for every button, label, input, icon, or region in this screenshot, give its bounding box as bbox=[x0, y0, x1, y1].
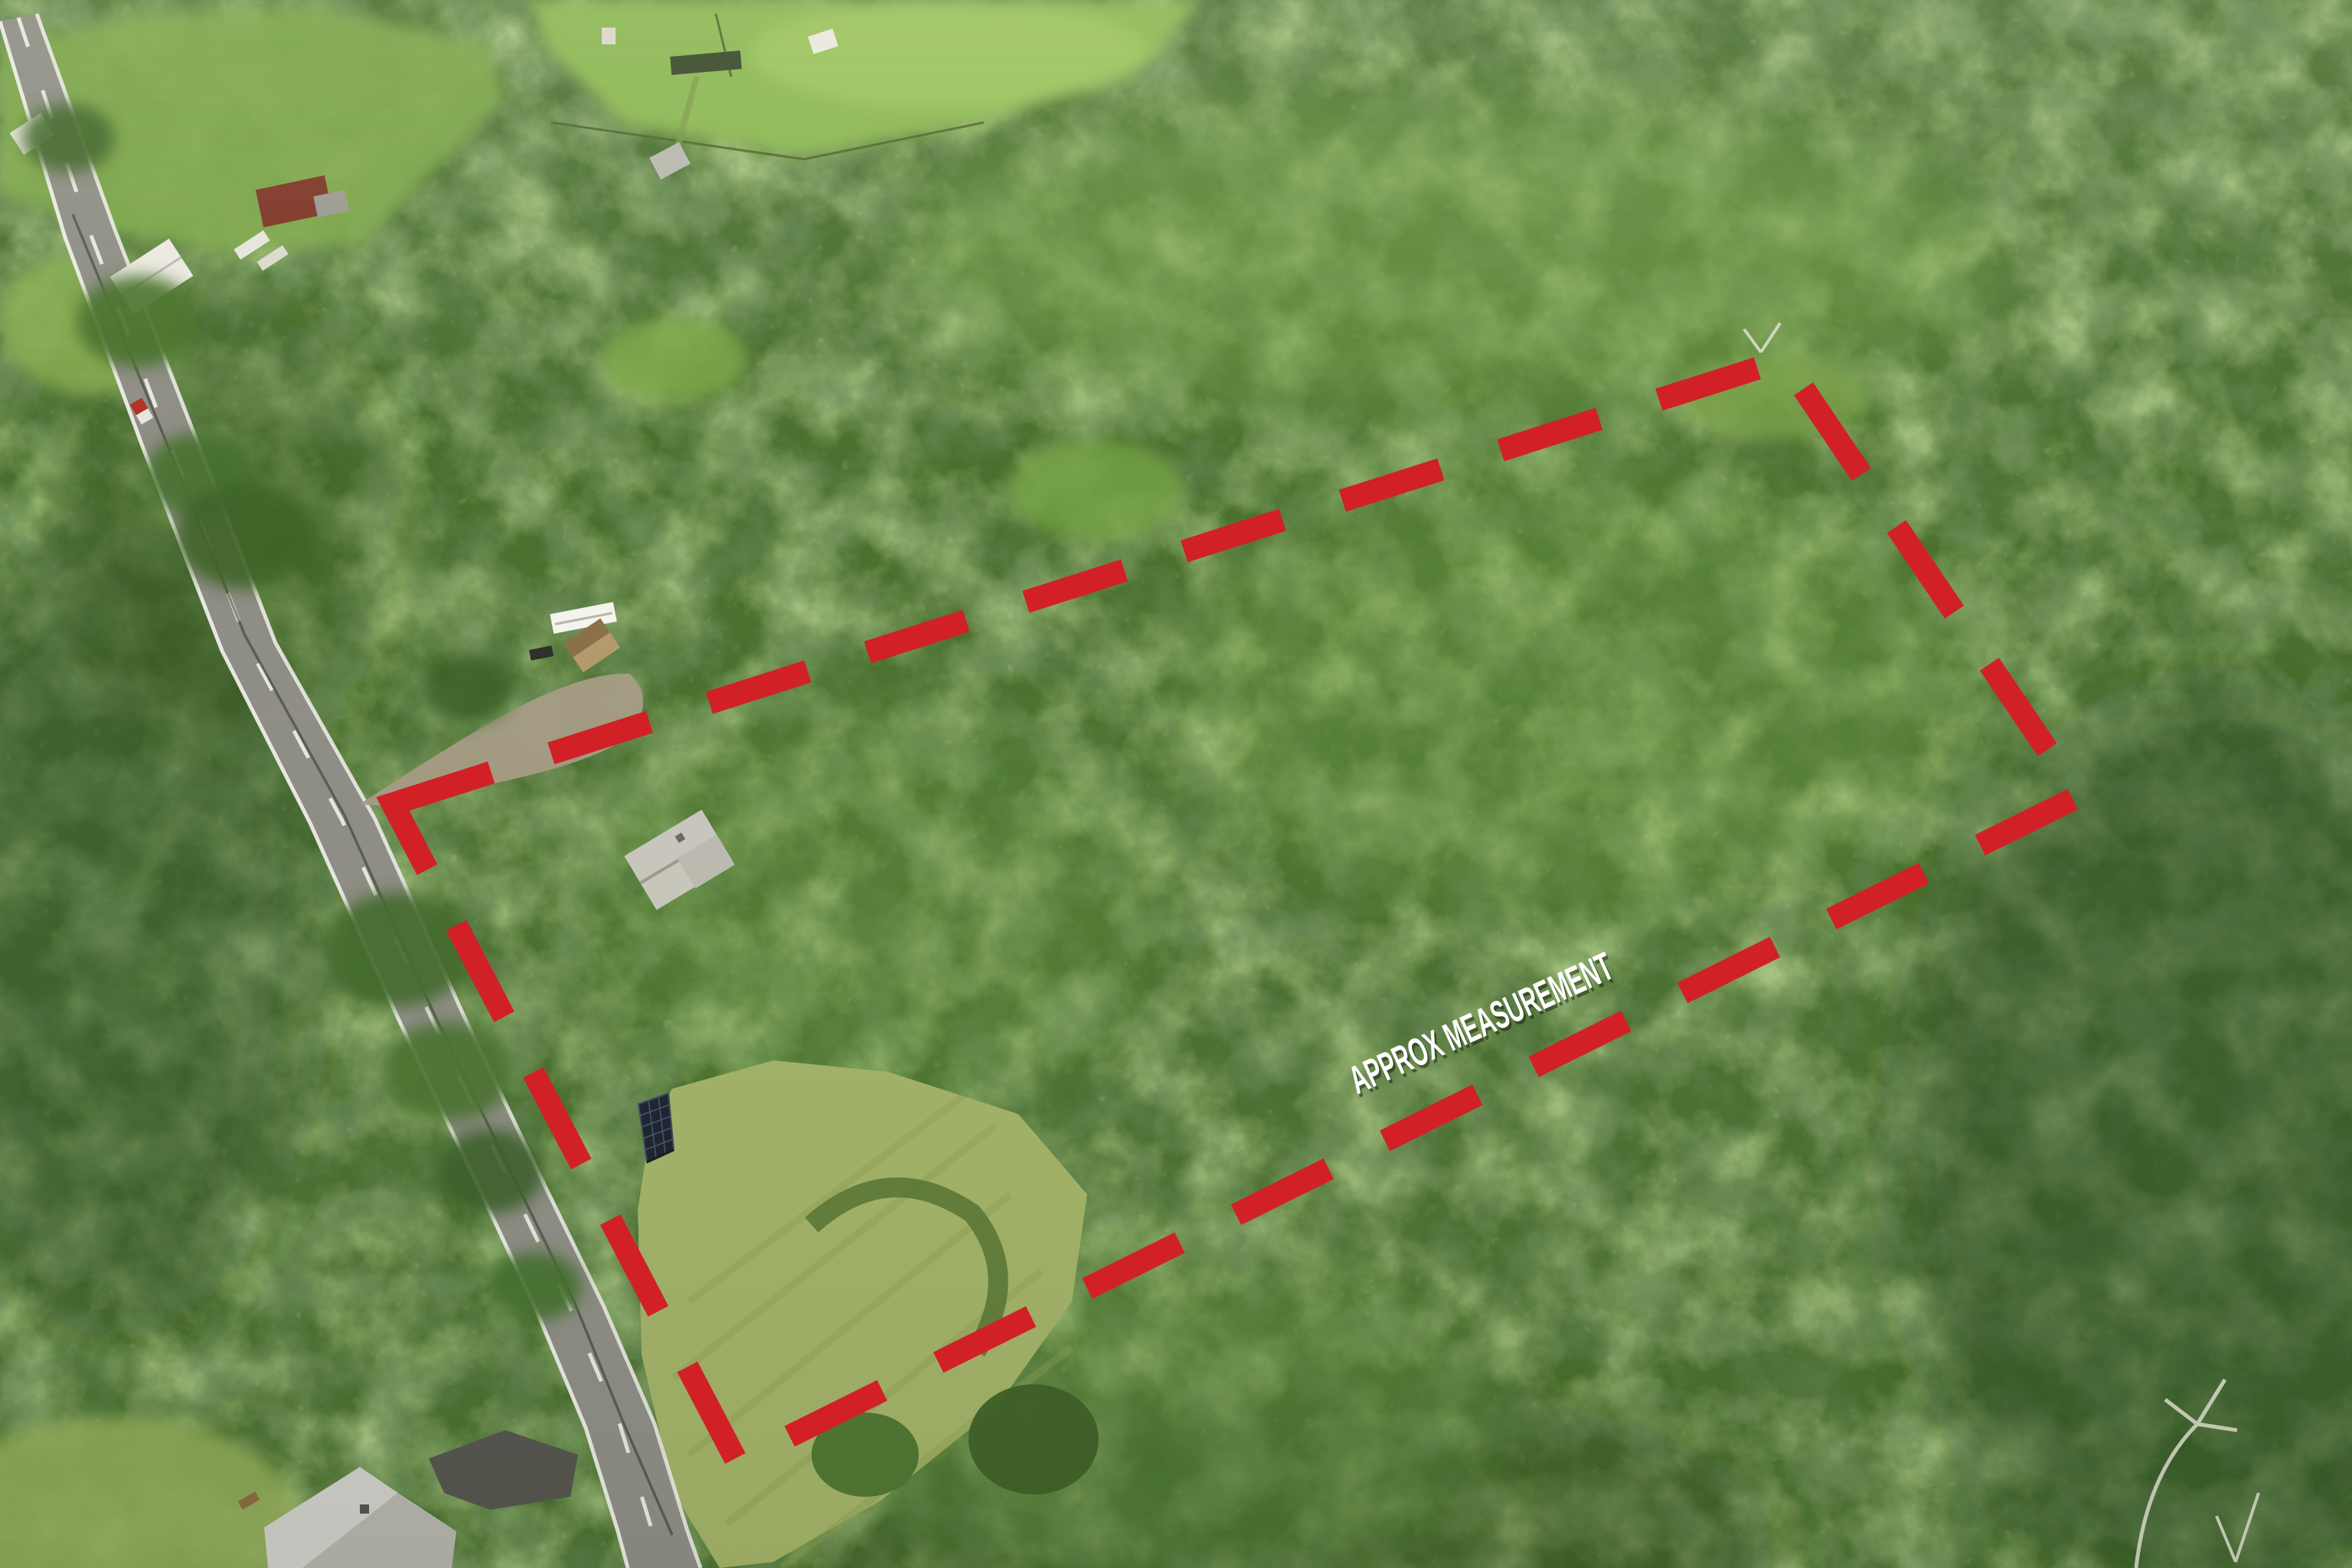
aerial-photo: APPROX MEASUREMENT APPROX MEASUREMENT bbox=[0, 0, 2352, 1568]
light-grade bbox=[0, 0, 2352, 1568]
